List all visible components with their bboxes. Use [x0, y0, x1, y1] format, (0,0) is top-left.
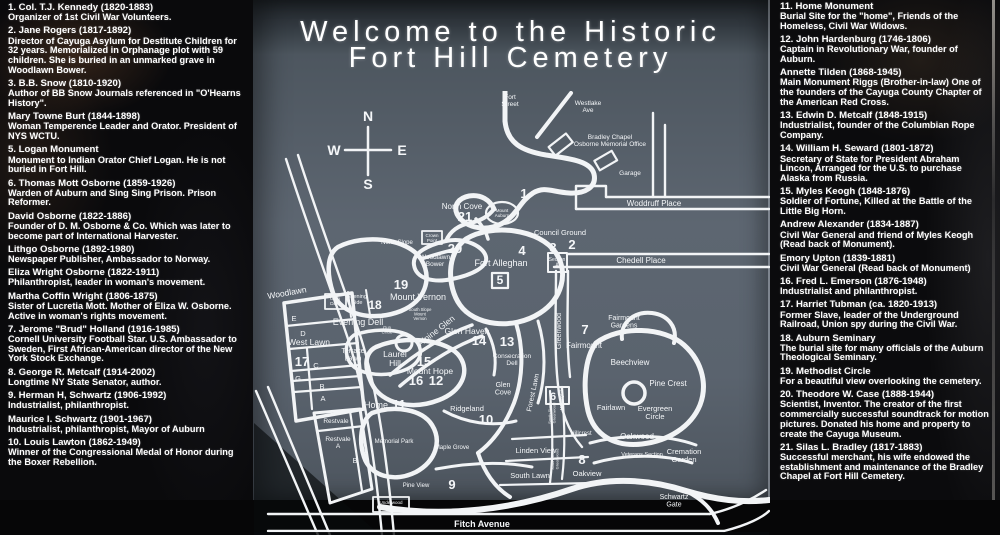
legend-entry: 18. Auburn SeminaryThe burial site for m… [780, 334, 992, 364]
cemetery-sign: 1. Col. T.J. Kennedy (1820-1883)Organize… [0, 0, 1000, 500]
label-home: Home [364, 400, 388, 410]
label-consecration-dell: ConsecrationDell [493, 353, 532, 367]
legend-entry-desc: Main Monument Riggs (Brother-in-law) One… [780, 78, 992, 107]
legend-entry: 20. Theodore W. Case (1888-1944)Scientis… [780, 390, 992, 439]
legend-entry-desc: Former Slave, leader of the Underground … [780, 311, 992, 331]
legend-entry-desc: Longtime NY State Senator, author. [8, 378, 244, 388]
left-legend-column: 1. Col. T.J. Kennedy (1820-1883)Organize… [0, 0, 253, 500]
label-glen-haven: Glen Haven [445, 326, 490, 336]
marker-9: 9 [448, 477, 455, 492]
label-oakwood: Oakwood [620, 432, 654, 441]
marker-4: 4 [518, 243, 526, 258]
legend-entry: Lithgo Osborne (1892-1980)Newspaper Publ… [8, 245, 244, 265]
legend-entry-desc: Industrialist, founder of the Columbian … [780, 121, 992, 141]
label-terrace-lawn: TerraceLawn [341, 348, 364, 363]
right-legend-column: 11. Home MonumentBurial Site for the "ho… [770, 0, 1000, 500]
legend-entry-desc: Scientist, Inventor. The creator of the … [780, 400, 992, 439]
legend-entry-desc: Founder of D. M. Osborne & Co. Which was… [8, 222, 244, 242]
legend-entry-desc: Secretary of State for President Abraham… [780, 155, 992, 184]
label-westlake-ave: WestlakeAve [575, 100, 602, 114]
marker-2: 2 [568, 237, 575, 252]
legend-entry: 10. Louis Lawton (1862-1949)Winner of th… [8, 438, 244, 468]
legend-entry-desc: Author of BB Snow Journals referenced in… [8, 89, 244, 109]
label-glen-dale: GlenDale [330, 296, 340, 307]
legend-entry: 1. Col. T.J. Kennedy (1820-1883)Organize… [8, 3, 244, 23]
legend-entry-desc: Captain in Revolutionary War, founder of… [780, 45, 992, 65]
legend-entry: 6. Thomas Mott Osborne (1859-1926)Warden… [8, 179, 244, 209]
legend-entry: 13. Edwin D. Metcalf (1848-1915)Industri… [780, 111, 992, 141]
label-forest-lawn: Forest Lawn [526, 373, 541, 412]
legend-entry: Andrew Alexander (1834-1887)Civil War Ge… [780, 220, 992, 250]
label-garage: Garage [619, 170, 641, 177]
legend-entry: 17. Harriet Tubman (ca. 1820-1913)Former… [780, 300, 992, 330]
legend-entry-desc: Successful merchant, his wife endowed th… [780, 453, 992, 482]
legend-entry: 11. Home MonumentBurial Site for the "ho… [780, 2, 992, 32]
marker-3: 3 [549, 240, 556, 255]
legend-entry-desc: The burial site for many officials of th… [780, 344, 992, 364]
sign-title: Welcome to the HistoricFort Hill Cemeter… [253, 19, 768, 71]
label-woddruff-place: Woddruff Place [627, 199, 682, 208]
compass-west: W [327, 142, 341, 158]
label-ridgeland: Ridgeland [450, 404, 484, 413]
legend-entry-desc: For a beautiful view overlooking the cem… [780, 377, 992, 387]
bradley-chapel-building [549, 133, 573, 155]
label-south-slope-greenwood-upper: South SlopeGreenwood [547, 401, 556, 424]
label-fitch-avenue: Fitch Avenue [454, 519, 510, 529]
legend-entry: 9. Herman H, Schwartz (1906-1992)Industr… [8, 391, 244, 411]
legend-entry-desc: Cornell University Football Star. U.S. A… [8, 335, 244, 364]
legend-entry: 21. Silas L. Bradley (1817-1883)Successf… [780, 443, 992, 482]
marker-18: 18 [368, 298, 382, 312]
label-chedell-place: Chedell Place [616, 256, 666, 265]
legend-entry-desc: Sister of Lucretia Mott. Mother of Eliza… [8, 302, 244, 322]
marker-7: 7 [581, 322, 588, 337]
label-section-e: E [291, 314, 296, 323]
legend-entry-desc: Warden of Auburn and Sing Sing Prison. P… [8, 189, 244, 209]
marker-6: 6 [550, 391, 556, 403]
marker-11: 11 [392, 397, 406, 412]
legend-entry-desc: Winner of the Congressional Medal of Hon… [8, 448, 244, 468]
legend-entry: 7. Jerome "Brud" Holland (1916-1985)Corn… [8, 325, 244, 364]
legend-entry: Maurice I. Schwartz (1901-1967)Industria… [8, 415, 244, 435]
label-linden-view: Linden View [516, 446, 557, 455]
label-south-slope-mount-vernon: South SlopeMountVernon [409, 307, 432, 321]
compass-north: N [363, 108, 373, 124]
legend-entry: Annette Tilden (1868-1945)Main Monument … [780, 68, 992, 107]
legend-entry-desc: Civil War General and friend of Myles Ke… [780, 231, 992, 251]
legend-entry-desc: Woman Temperence Leader and Orator. Pres… [8, 122, 244, 142]
compass-south: S [363, 176, 372, 192]
label-bradley-chapel-osborne-memorial-office: Bradley ChapelOsborne Memorial Office [574, 134, 647, 148]
legend-entry: David Osborne (1822-1886)Founder of D. M… [8, 212, 244, 242]
legend-entry: 19. Methodist CircleFor a beautiful view… [780, 367, 992, 387]
label-fort-street: FortStreet [501, 94, 519, 108]
label-south-lawn: South Lawn [510, 471, 550, 480]
legend-entry: 5. Logan MonumentMonument to Indian Orat… [8, 145, 244, 175]
legend-entry-name: 14. William H. Seward (1801-1872) [780, 144, 992, 154]
label-veterans-section: Veterans Section [621, 452, 663, 458]
legend-entry: 2. Jane Rogers (1817-1892)Director of Ca… [8, 26, 244, 75]
marker-21: 21 [458, 209, 472, 224]
label-mount-hope: Mount Hope [407, 366, 454, 376]
label-pine-crest: Pine Crest [649, 379, 687, 388]
legend-entry-desc: Monument to Indian Orator Chief Logan. H… [8, 156, 244, 176]
legend-entry: 14. William H. Seward (1801-1872)Secreta… [780, 144, 992, 183]
marker-1: 1 [520, 186, 527, 201]
legend-entry: 16. Fred L. Emerson (1876-1948)Industria… [780, 277, 992, 297]
label-fairmount: Fairmount [566, 341, 603, 350]
legend-entry-desc: Industrialist, philanthropist. [8, 401, 244, 411]
sign-title-line2: Fort Hill Cemetery [349, 42, 673, 74]
label-fairmount-gardens: FairmountGardens [608, 315, 640, 330]
label-oakview: Oakview [573, 469, 602, 478]
marker-10: 10 [479, 412, 493, 427]
label-memorial-park: Memorial Park [375, 439, 415, 445]
label-mount-auburn: MountAuburn [495, 208, 510, 218]
label-mount-vernon: Mount Vernon [390, 292, 446, 302]
label-fairlawn: Fairlawn [597, 403, 625, 412]
label-evergreen-circle: EvergreenCircle [638, 404, 673, 421]
garage-building [594, 151, 617, 171]
legend-entry: Martha Coffin Wright (1806-1875)Sister o… [8, 292, 244, 322]
label-fort-alleghan: Fort Alleghan [474, 258, 527, 268]
marker-19: 19 [394, 277, 408, 292]
label-crown-point: CrownPoint [425, 233, 439, 243]
label-hillcrest: Hillcrest [570, 431, 592, 437]
label-woodlawn-street: Woodlawn [267, 284, 308, 301]
map-panel: Welcome to the HistoricFort Hill Cemeter… [253, 0, 770, 500]
legend-entry: 15. Myles Keogh (1848-1876)Soldier of Fo… [780, 187, 992, 217]
label-restvale-upper: Restvale [323, 418, 349, 425]
legend-entry-desc: Newspaper Publisher, Ambassador to Norwa… [8, 255, 244, 265]
label-maple-grove: Maple Grove [435, 445, 470, 451]
label-section-g: G [295, 374, 301, 383]
legend-entry-desc: Director of Cayuga Asylum for Destitute … [8, 37, 244, 76]
legend-entry: 8. George R. Metcalf (1914-2002)Longtime… [8, 368, 244, 388]
cemetery-map: NSWEFortStreetWestlakeAveBradley ChapelO… [253, 91, 770, 535]
label-morningside: Morningside [559, 387, 564, 410]
legend-entry: Mary Towne Burt (1844-1898)Woman Tempere… [8, 112, 244, 142]
label-west-lawn: West Lawn [288, 337, 330, 347]
label-council-ground: Council Ground [534, 228, 586, 237]
evergreen-circle-shape [623, 382, 645, 404]
legend-entry-name: 5. Logan Monument [8, 145, 244, 155]
map-bottom-edge [254, 532, 769, 535]
label-section-c: C [313, 361, 319, 370]
label-schwartz-gate: SchwartzGate [660, 494, 689, 509]
legend-entry: Eliza Wright Osborne (1822-1911)Philanth… [8, 268, 244, 288]
legend-entry: 12. John Hardenburg (1746-1806)Captain i… [780, 35, 992, 65]
marker-5: 5 [497, 273, 504, 287]
label-section-b: B [319, 382, 324, 391]
legend-entry-desc: Philanthropist, leader in woman's moveme… [8, 278, 244, 288]
legend-entry: 3. B.B. Snow (1810-1920)Author of BB Sno… [8, 79, 244, 109]
marker-8: 8 [578, 452, 585, 467]
label-cremation-garden: CremationGarden [667, 447, 702, 464]
legend-entry-desc: Industrialist, philanthropist, Mayor of … [8, 425, 244, 435]
label-restvale-b: B [353, 458, 358, 465]
label-restvale-a: RestvaleA [325, 436, 351, 450]
label-beechview: Beechview [611, 358, 650, 367]
label-evening-dell: Evening Dell [333, 317, 384, 327]
legend-entry-desc: Organizer of 1st Civil War Volunteers. [8, 13, 244, 23]
label-section-a-west-lawn: A [320, 394, 325, 403]
label-glen-cove: GlenCove [495, 382, 511, 397]
compass-east: E [397, 142, 406, 158]
marker-13: 13 [500, 334, 514, 349]
label-greenwood: Greenwood [556, 313, 563, 349]
legend-entry: Emory Upton (1839-1881)Civil War General… [780, 254, 992, 274]
label-pine-view: Pine View [403, 483, 430, 489]
legend-entry-desc: Civil War General (Read back of Monument… [780, 264, 992, 274]
label-gun-circle: GunCircle [382, 325, 393, 335]
legend-entry-desc: Industrialist and philanthropist. [780, 287, 992, 297]
legend-entry-desc: Soldier of Fortune, Killed at the Battle… [780, 197, 992, 217]
marker-17: 17 [295, 354, 309, 369]
label-north-slope: North Slope [381, 240, 413, 246]
label-north-cove: North Cove [442, 202, 483, 211]
legend-entry-desc: Burial Site for the "home", Friends of t… [780, 12, 992, 32]
